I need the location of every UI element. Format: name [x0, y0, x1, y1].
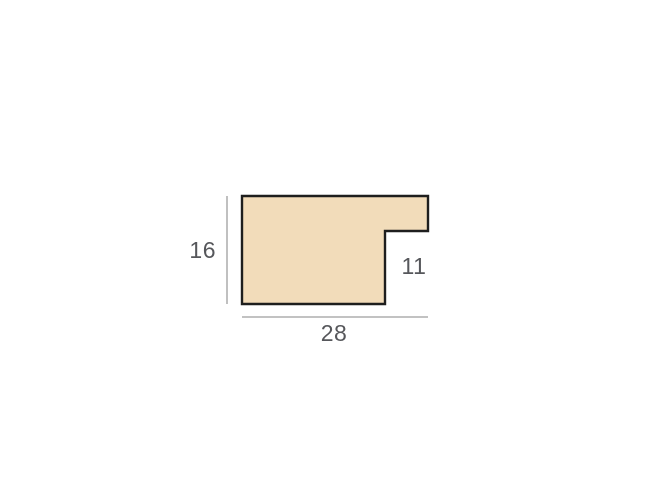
rebate-dimension-label: 11 [396, 253, 432, 279]
moulding-profile-diagram: 16 11 28 [0, 0, 667, 500]
width-dimension-label: 28 [310, 320, 358, 346]
profile-drawing [0, 0, 667, 500]
height-dimension-label: 16 [182, 237, 216, 263]
moulding-cross-section-shape [242, 196, 428, 304]
